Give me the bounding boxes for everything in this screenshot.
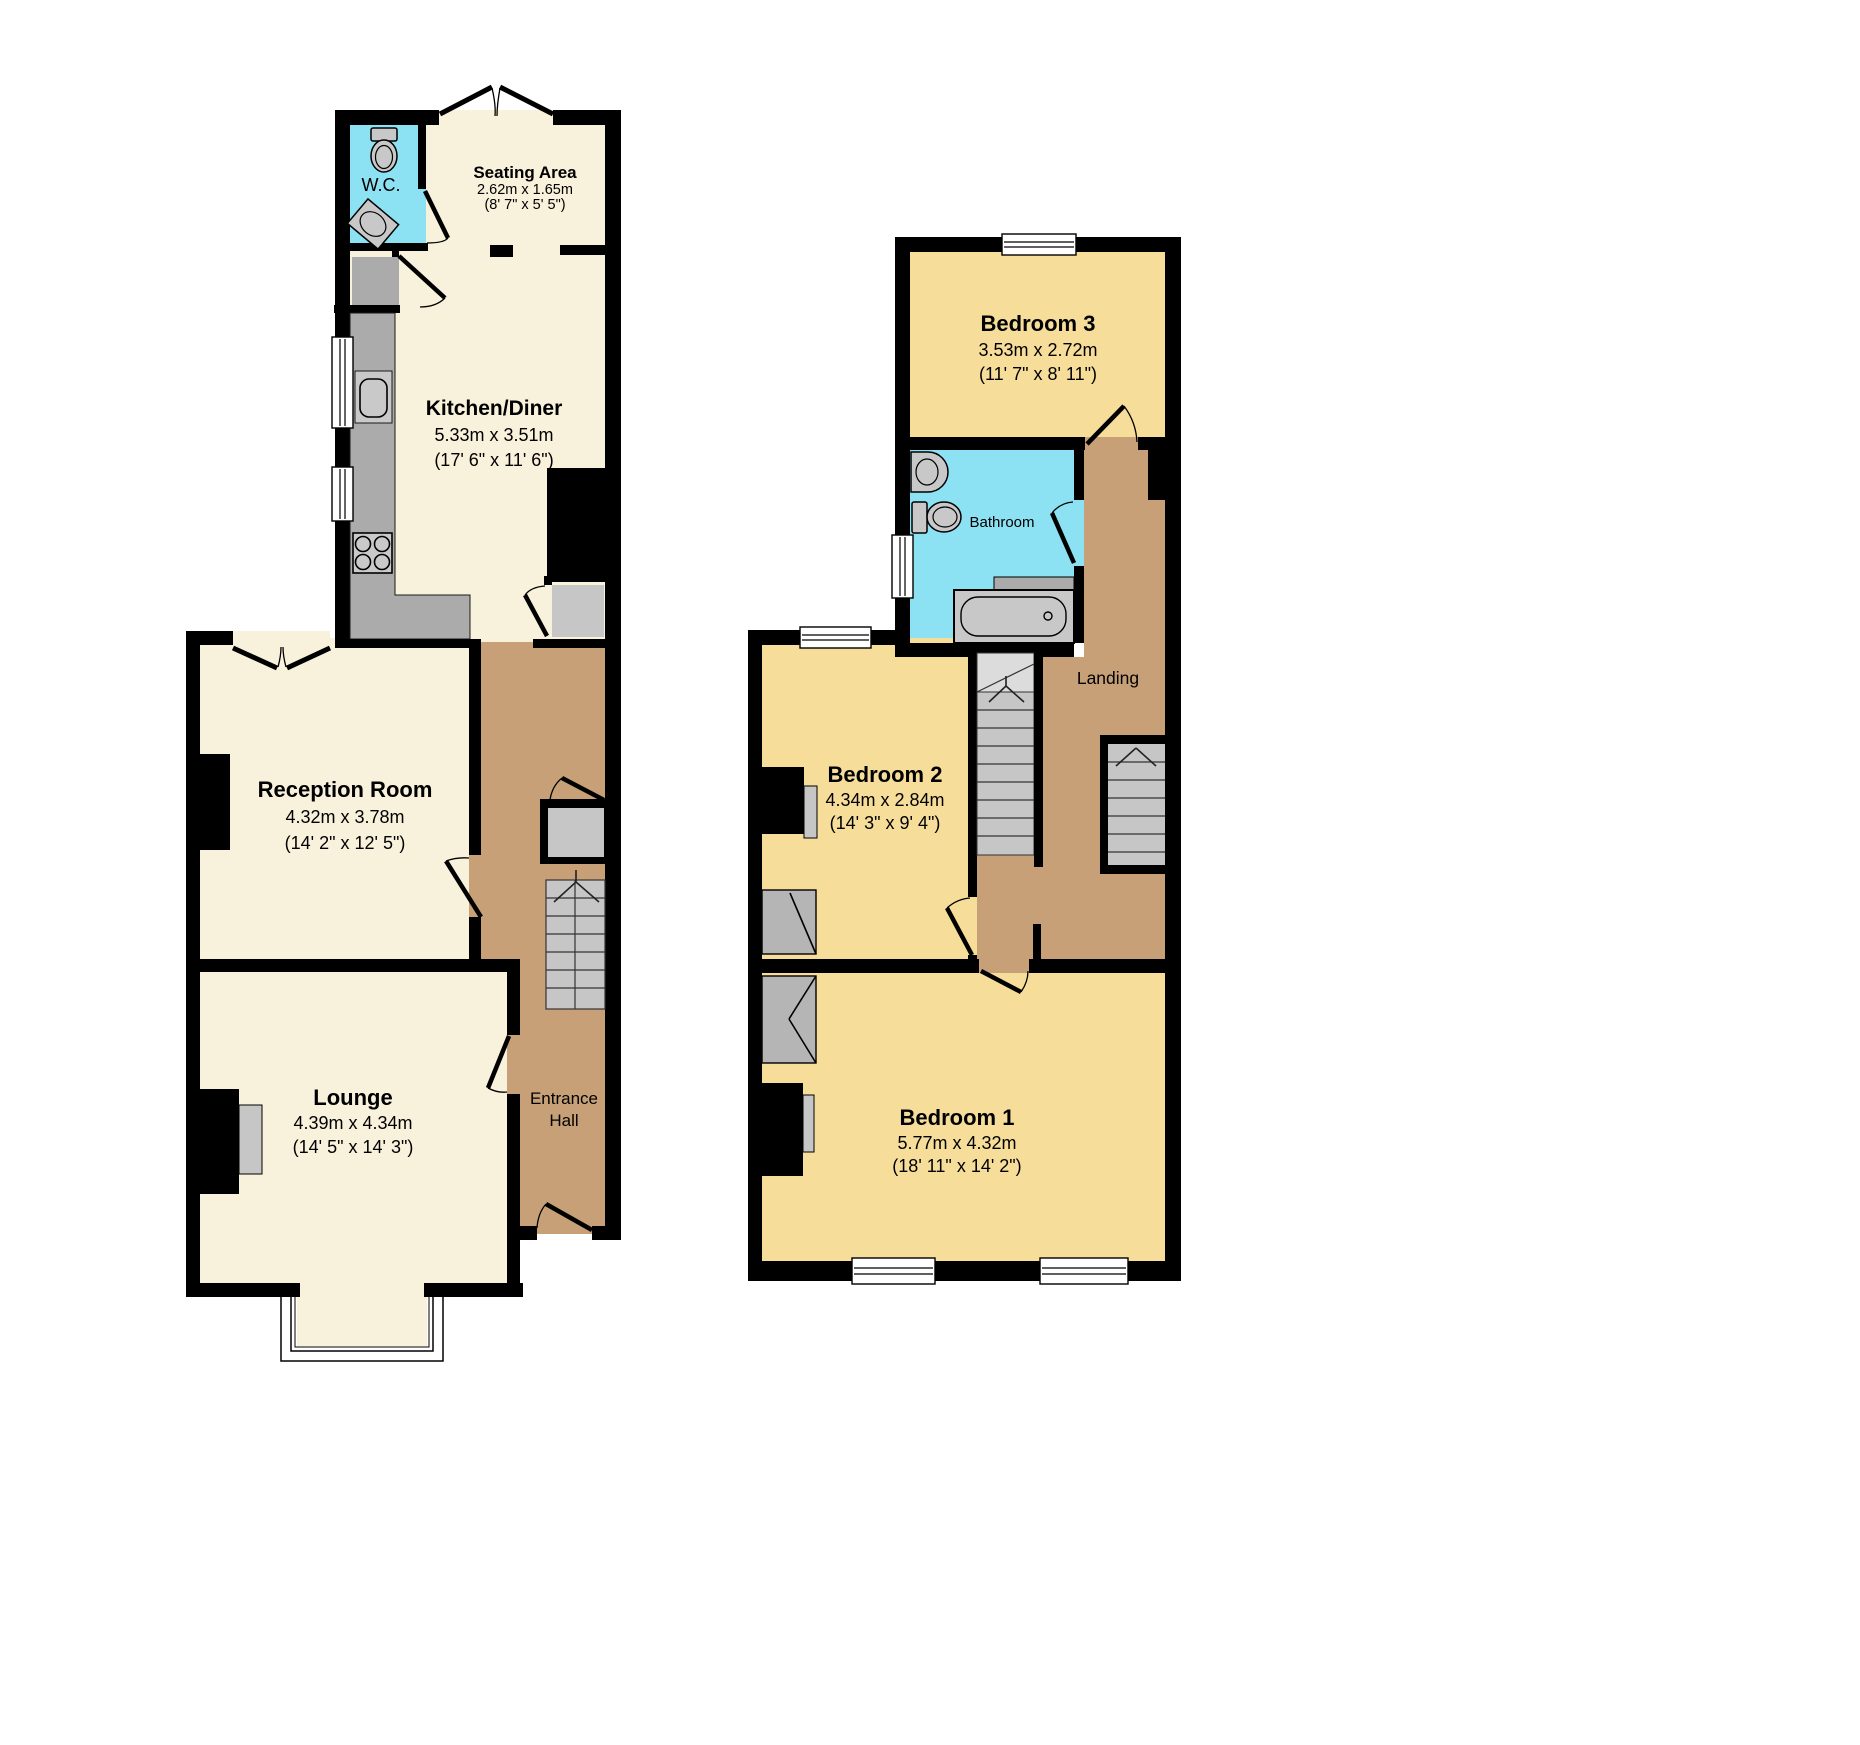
- svg-text:Reception Room: Reception Room: [258, 777, 433, 802]
- svg-text:2.62m x 1.65m: 2.62m x 1.65m: [477, 182, 573, 198]
- svg-text:(11' 7" x 8' 11"): (11' 7" x 8' 11"): [979, 364, 1097, 384]
- svg-text:(14' 2" x 12' 5"): (14' 2" x 12' 5"): [285, 833, 406, 853]
- svg-text:4.39m x 4.34m: 4.39m x 4.34m: [293, 1113, 412, 1133]
- svg-text:Lounge: Lounge: [313, 1085, 392, 1110]
- svg-text:(8' 7" x 5' 5"): (8' 7" x 5' 5"): [484, 197, 565, 213]
- svg-text:5.77m x 4.32m: 5.77m x 4.32m: [897, 1133, 1016, 1153]
- svg-text:4.34m x 2.84m: 4.34m x 2.84m: [825, 790, 944, 810]
- svg-text:5.33m x 3.51m: 5.33m x 3.51m: [434, 425, 553, 445]
- svg-text:(14' 5" x 14' 3"): (14' 5" x 14' 3"): [293, 1137, 414, 1157]
- svg-text:Landing: Landing: [1077, 668, 1139, 688]
- svg-text:3.53m x 2.72m: 3.53m x 2.72m: [978, 340, 1097, 360]
- svg-text:Bedroom 2: Bedroom 2: [828, 762, 943, 787]
- svg-text:Bathroom: Bathroom: [969, 514, 1034, 531]
- svg-text:4.32m x 3.78m: 4.32m x 3.78m: [285, 807, 404, 827]
- svg-text:Bedroom 3: Bedroom 3: [981, 311, 1096, 336]
- svg-text:(17' 6" x 11' 6"): (17' 6" x 11' 6"): [434, 450, 553, 470]
- svg-text:Bedroom 1: Bedroom 1: [900, 1105, 1015, 1130]
- svg-text:Seating Area: Seating Area: [473, 163, 577, 182]
- svg-text:(18' 11" x 14' 2"): (18' 11" x 14' 2"): [892, 1156, 1021, 1176]
- svg-text:Hall: Hall: [549, 1111, 578, 1130]
- svg-text:Entrance: Entrance: [530, 1089, 598, 1108]
- svg-text:(14' 3" x 9' 4"): (14' 3" x 9' 4"): [830, 813, 941, 833]
- svg-text:W.C.: W.C.: [362, 175, 401, 195]
- svg-text:Kitchen/Diner: Kitchen/Diner: [426, 397, 563, 420]
